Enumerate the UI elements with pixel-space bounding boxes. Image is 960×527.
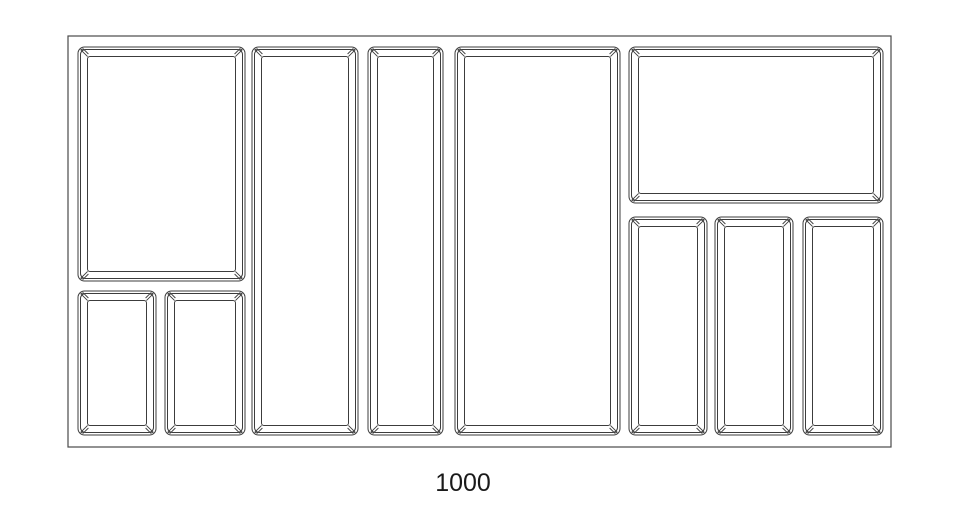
compartment-floor-edge bbox=[88, 301, 147, 426]
compartment-bottom-right-tall-1 bbox=[629, 217, 707, 435]
compartment-outer-edge bbox=[78, 291, 156, 435]
compartment-outer-edge bbox=[715, 217, 793, 435]
compartment-rim-edge bbox=[81, 50, 243, 279]
compartment-bottom-right-tall-2 bbox=[715, 217, 793, 435]
compartments-layer bbox=[78, 47, 883, 435]
compartment-outer-edge bbox=[455, 47, 620, 435]
compartment-outer-edge bbox=[78, 47, 245, 281]
compartment-rim-edge bbox=[168, 294, 243, 433]
compartment-rim-edge bbox=[632, 50, 881, 201]
compartment-outer-edge bbox=[165, 291, 245, 435]
compartment-floor-edge bbox=[813, 227, 874, 426]
compartment-floor-edge bbox=[378, 57, 434, 426]
compartment-rim-edge bbox=[81, 294, 154, 433]
compartment-floor-edge bbox=[639, 227, 698, 426]
tray-outline bbox=[68, 36, 891, 447]
compartment-outer-edge bbox=[629, 217, 707, 435]
compartment-rim-edge bbox=[458, 50, 618, 433]
compartment-center-tall-1 bbox=[252, 47, 358, 435]
compartment-rim-edge bbox=[806, 220, 881, 433]
compartment-outer-edge bbox=[803, 217, 883, 435]
compartment-bottom-left-small-2 bbox=[165, 291, 245, 435]
compartment-floor-edge bbox=[175, 301, 236, 426]
compartment-floor-edge bbox=[88, 57, 236, 272]
compartment-center-tall-2 bbox=[368, 47, 443, 435]
width-dimension-label: 1000 bbox=[435, 469, 491, 497]
drawing-canvas: 1000 bbox=[0, 0, 960, 527]
compartment-outer-edge bbox=[629, 47, 883, 203]
compartment-outer-edge bbox=[368, 47, 443, 435]
compartment-rim-edge bbox=[718, 220, 791, 433]
compartment-rim-edge bbox=[255, 50, 356, 433]
compartment-bottom-right-tall-3 bbox=[803, 217, 883, 435]
compartment-top-left-large bbox=[78, 47, 245, 281]
compartment-rim-edge bbox=[371, 50, 441, 433]
compartment-outer-edge bbox=[252, 47, 358, 435]
compartment-top-right-wide bbox=[629, 47, 883, 203]
compartment-center-tall-3 bbox=[455, 47, 620, 435]
compartment-bottom-left-small-1 bbox=[78, 291, 156, 435]
cutlery-tray-drawing: 1000 bbox=[0, 0, 960, 527]
compartment-floor-edge bbox=[725, 227, 784, 426]
compartment-rim-edge bbox=[632, 220, 705, 433]
compartment-floor-edge bbox=[465, 57, 611, 426]
compartment-floor-edge bbox=[639, 57, 874, 194]
compartment-floor-edge bbox=[262, 57, 349, 426]
